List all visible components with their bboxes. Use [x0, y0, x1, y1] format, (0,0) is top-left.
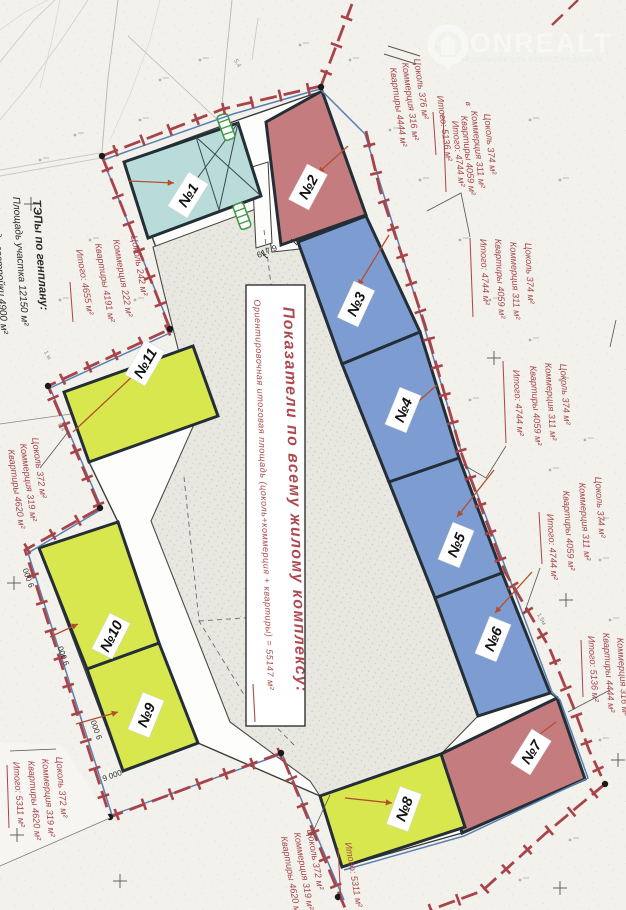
svg-text:ONREALT: ONREALT: [470, 28, 613, 58]
svg-text:НЕДВИЖИМОСТЬ БЕЗ ПОСРЕДНИКОВ: НЕДВИЖИМОСТЬ БЕЗ ПОСРЕДНИКОВ: [461, 55, 602, 64]
